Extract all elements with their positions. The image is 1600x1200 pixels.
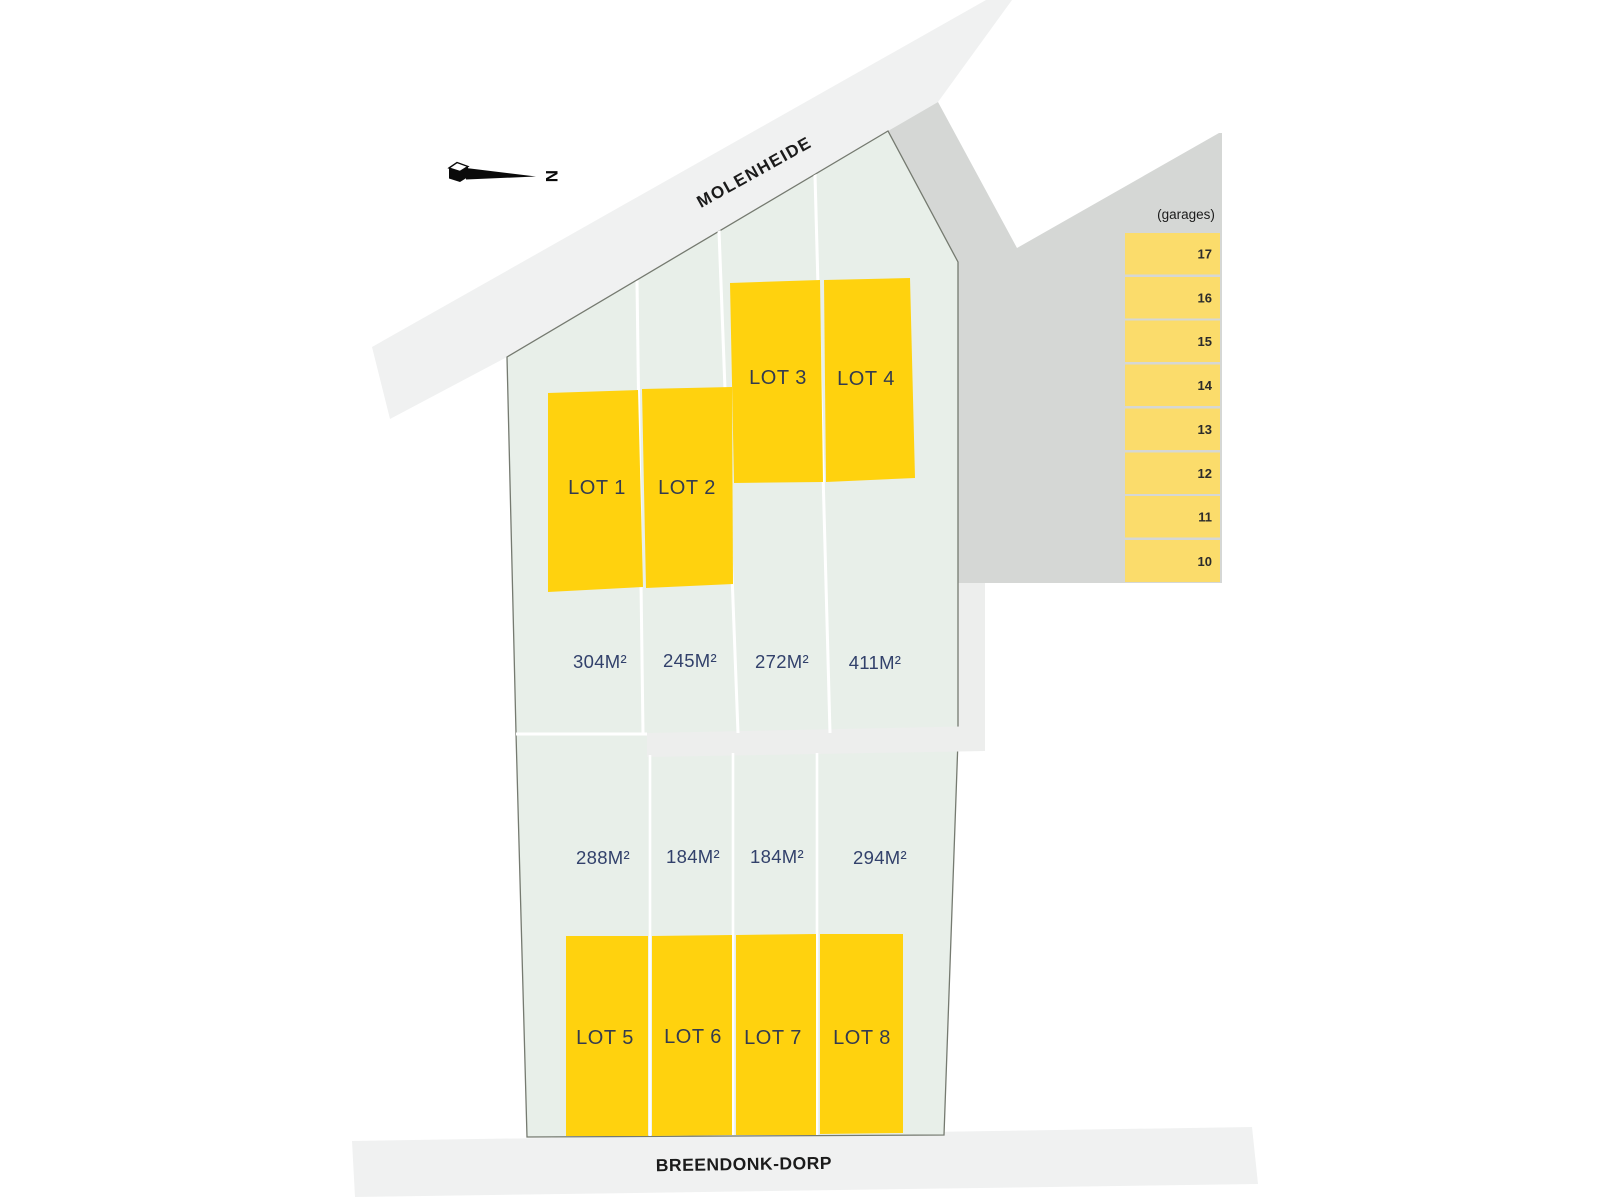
lot-label-2: LOT 2 xyxy=(658,477,716,499)
lot-label-8: LOT 8 xyxy=(833,1027,891,1049)
garages-title: (garages) xyxy=(1157,207,1215,222)
garage-unit-label-10: 10 xyxy=(1198,554,1212,569)
area-label-1: 304M² xyxy=(573,651,627,672)
north-arrow: N xyxy=(449,163,561,183)
lot-label-5: LOT 5 xyxy=(576,1027,634,1049)
garage-unit-label-11: 11 xyxy=(1198,510,1212,525)
north-arrow-needle xyxy=(466,168,536,180)
lot-divider xyxy=(516,733,647,736)
lot-label-1: LOT 1 xyxy=(568,477,626,499)
area-label-4: 411M² xyxy=(849,652,902,673)
lot-label-6: LOT 6 xyxy=(664,1026,722,1048)
lot-label-7: LOT 7 xyxy=(744,1027,802,1049)
area-label-8: 294M² xyxy=(853,847,907,868)
street-breendonk-label: BREENDONK-DORP xyxy=(656,1153,832,1175)
garage-unit-label-15: 15 xyxy=(1198,334,1212,349)
area-label-2: 245M² xyxy=(663,650,717,671)
area-label-3: 272M² xyxy=(755,651,809,672)
area-label-5: 288M² xyxy=(576,847,630,868)
lot-divider xyxy=(732,753,735,1135)
garage-unit-label-16: 16 xyxy=(1198,291,1212,306)
site-plan-page: 17 16 15 14 13 12 11 10 (garages) LOT 1 … xyxy=(0,0,1600,1200)
access-path-vertical xyxy=(958,583,985,727)
area-label-7: 184M² xyxy=(750,846,804,867)
garage-unit-label-13: 13 xyxy=(1198,422,1212,437)
north-label: N xyxy=(542,170,561,182)
area-label-6: 184M² xyxy=(666,846,720,867)
lot-label-3: LOT 3 xyxy=(749,367,807,389)
garage-unit-label-12: 12 xyxy=(1198,466,1212,481)
lot-divider xyxy=(816,753,819,1135)
garage-unit-label-17: 17 xyxy=(1198,247,1212,262)
lot-divider xyxy=(649,755,652,1136)
lot-label-4: LOT 4 xyxy=(837,368,895,390)
garage-unit-label-14: 14 xyxy=(1198,378,1213,393)
site-plan-svg: 17 16 15 14 13 12 11 10 (garages) LOT 1 … xyxy=(0,0,1600,1200)
